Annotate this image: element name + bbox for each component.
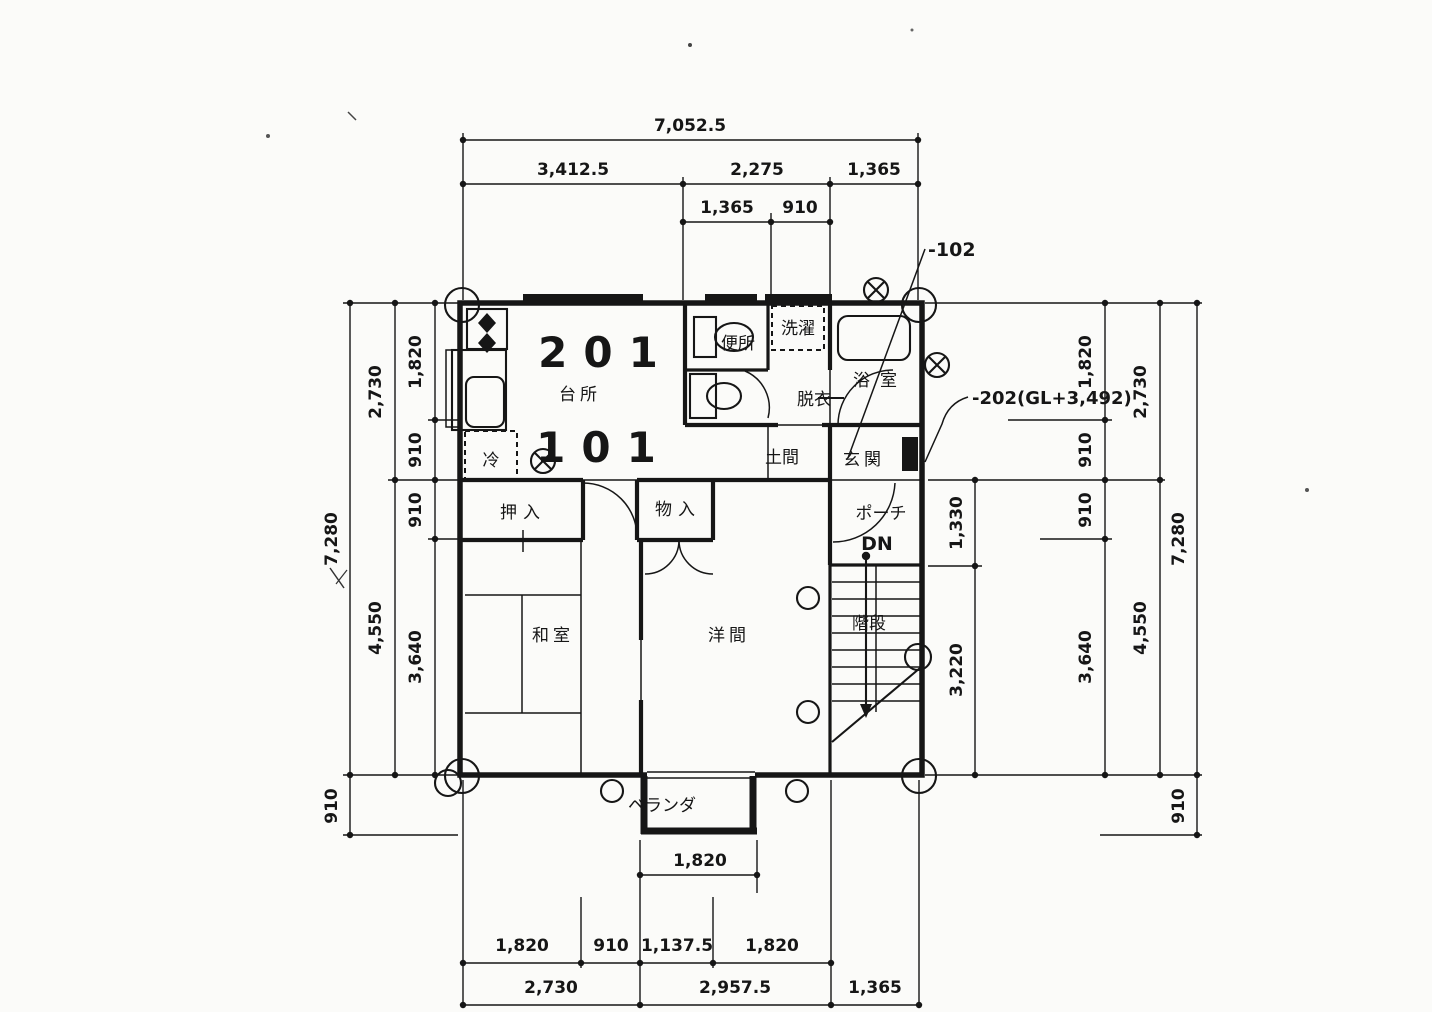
room-label-laundry: 洗濯	[781, 319, 815, 339]
room-label-storage: 物入	[655, 500, 701, 520]
dim-left-mid-a: 2,730	[366, 365, 386, 419]
dim-left-mid-b: 4,550	[366, 601, 386, 655]
dim-veranda: 1,820	[673, 851, 727, 871]
floor-plan-drawing: 7,052.5 3,412.5 2,275 1,365 1,365 910 7,…	[0, 0, 1432, 1012]
dim-right-mid-a: 2,730	[1131, 365, 1151, 419]
dim-right-c2-b: 910	[1076, 432, 1096, 468]
dim-bot-b: 910	[593, 936, 629, 956]
dim-top-e: 910	[782, 198, 818, 218]
room-label-japanese-room: 和室	[532, 626, 574, 646]
dim-right-c2-c: 910	[1076, 492, 1096, 528]
window-top-toilet	[705, 294, 757, 303]
ref-102-label: -102	[928, 239, 976, 261]
dn-label: DN	[861, 533, 893, 555]
dim-bot-g: 1,365	[848, 978, 902, 998]
room-label-kitchen: 台所	[559, 385, 601, 405]
bathtub	[838, 316, 910, 360]
door-storage-right	[679, 540, 713, 574]
dim-right-below: 910	[1169, 788, 1189, 824]
dim-left-in-b: 910	[406, 432, 426, 468]
leader-line-202	[925, 397, 968, 462]
dim-right-in-b: 3,220	[947, 643, 967, 697]
dim-bot-d: 1,820	[745, 936, 799, 956]
dim-bot-e: 2,730	[524, 978, 578, 998]
dim-top-total: 7,052.5	[654, 116, 726, 136]
room-label-veranda: ベランダ	[628, 796, 696, 816]
room-label-doma: 土間	[765, 448, 799, 468]
tatami-lines	[465, 540, 581, 775]
dim-right-in-a: 1,330	[947, 496, 967, 550]
window-top-dressing	[765, 294, 832, 303]
dim-left-in-a: 1,820	[406, 335, 426, 389]
stairs	[832, 552, 920, 742]
window-top-kitchen	[523, 294, 643, 303]
dimensions-left: 7,280 910 2,730 4,550 1,820 910 910 3,64…	[322, 300, 460, 838]
dim-top-c: 1,365	[847, 160, 901, 180]
unit-number-upper: 201	[538, 328, 674, 377]
dim-bot-c: 1,137.5	[641, 936, 713, 956]
dn-arrow	[860, 552, 872, 718]
dim-right-mid-b: 4,550	[1131, 601, 1151, 655]
room-labels: 201 台所 101 押入 物入 和室 洋間 便所 洗濯 脱衣 浴室 玄関 土間…	[500, 319, 907, 816]
dim-left-total: 7,280	[322, 512, 342, 566]
door-storage-left	[645, 540, 679, 574]
room-label-porch: ポーチ	[856, 504, 907, 524]
circled-x-icon	[925, 353, 949, 377]
room-label-stairs: 階段	[852, 614, 886, 634]
dim-bot-f: 2,957.5	[699, 978, 771, 998]
fridge-box: 冷	[465, 431, 517, 481]
dim-bot-a: 1,820	[495, 936, 549, 956]
dim-top-a: 3,412.5	[537, 160, 609, 180]
room-label-closet: 押入	[500, 503, 546, 523]
dim-left-in-c: 910	[406, 492, 426, 528]
dim-top-d: 1,365	[700, 198, 754, 218]
room-label-toilet: 便所	[721, 334, 755, 354]
dim-top-b: 2,275	[730, 160, 784, 180]
dimensions-top: 7,052.5 3,412.5 2,275 1,365 1,365 910	[460, 116, 921, 300]
scanned-floor-plan-page: 7,052.5 3,412.5 2,275 1,365 1,365 910 7,…	[0, 0, 1432, 1012]
stove-icon	[467, 309, 507, 353]
room-label-bath: 浴室	[853, 371, 907, 391]
dim-right-total: 7,280	[1169, 512, 1189, 566]
ref-202-label: -202(GL+3,492)	[972, 388, 1132, 409]
walls	[446, 294, 922, 781]
toilet-lower	[690, 374, 741, 418]
dim-left-below: 910	[322, 788, 342, 824]
door-kitchen-washitsu	[583, 483, 637, 537]
room-label-western-room: 洋間	[708, 626, 750, 646]
unit-number-lower: 101	[536, 423, 672, 472]
door-toilet	[745, 371, 769, 418]
room-label-entrance: 玄関	[843, 450, 885, 470]
dim-right-c2-d: 3,640	[1076, 630, 1096, 684]
room-label-dressing: 脱衣	[797, 390, 831, 410]
dim-left-in-d: 3,640	[406, 630, 426, 684]
entry-door-block	[902, 437, 918, 471]
dim-right-c2-a: 1,820	[1076, 335, 1096, 389]
dimensions-right: 1,330 3,220 1,820 910 910 3,640 2,730 4,…	[925, 300, 1202, 838]
fridge-label: 冷	[483, 451, 500, 471]
circled-x-icon	[864, 278, 888, 302]
